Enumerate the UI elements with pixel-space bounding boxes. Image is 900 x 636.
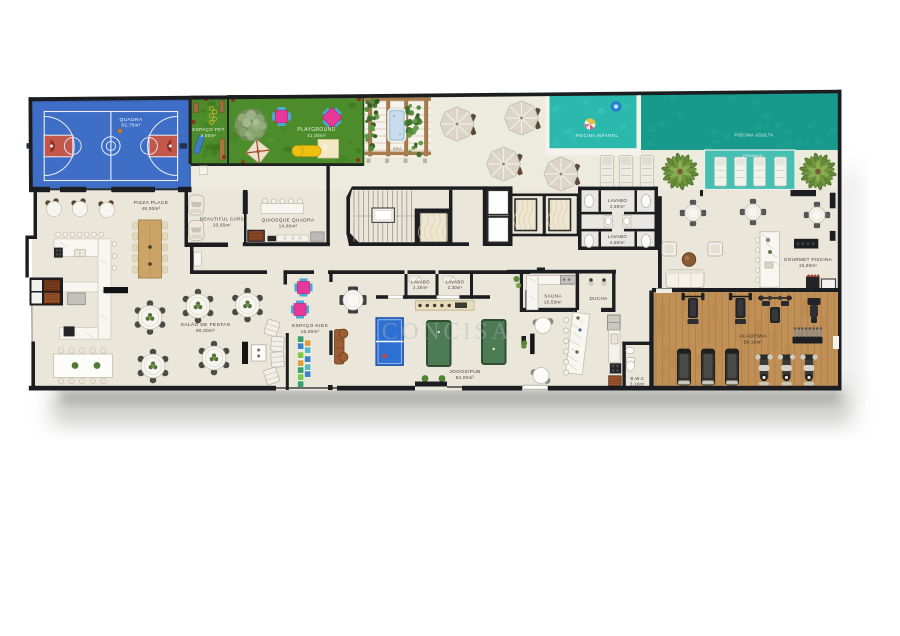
svg-text:GOURMET PISCINA: GOURMET PISCINA	[784, 257, 833, 262]
svg-text:14,00m²: 14,00m²	[279, 223, 298, 228]
svg-text:84,00m²: 84,00m²	[456, 375, 475, 380]
svg-text:3,10m²: 3,10m²	[630, 381, 645, 386]
svg-text:CONCISA: CONCISA	[382, 319, 513, 345]
svg-text:ESPAÇO PET: ESPAÇO PET	[192, 127, 225, 132]
svg-text:16,00m²: 16,00m²	[301, 329, 320, 334]
svg-text:PISCINA INFANTIL: PISCINA INFANTIL	[576, 133, 619, 138]
svg-text:90,00m²: 90,00m²	[196, 328, 215, 333]
svg-text:PISCINA ADULTA: PISCINA ADULTA	[734, 133, 773, 138]
svg-text:2,30m²: 2,30m²	[448, 285, 463, 290]
svg-text:4,50m²: 4,50m²	[610, 204, 625, 209]
svg-text:DUCHA: DUCHA	[589, 296, 608, 301]
svg-text:2,30m²: 2,30m²	[413, 285, 428, 290]
svg-text:SAUNA: SAUNA	[544, 294, 562, 299]
svg-text:SALÃO DE FESTAS: SALÃO DE FESTAS	[181, 321, 231, 328]
svg-text:4,80m²: 4,80m²	[610, 240, 625, 245]
svg-text:LAVABO: LAVABO	[411, 280, 430, 285]
svg-text:LAVABO: LAVABO	[608, 198, 628, 203]
svg-text:B.W.C: B.W.C	[631, 376, 645, 381]
svg-text:LAVABO: LAVABO	[608, 234, 628, 239]
svg-text:SPA: SPA	[393, 147, 403, 152]
svg-text:BEAUTIFUL CARS: BEAUTIFUL CARS	[200, 217, 244, 222]
svg-text:10,55m²: 10,55m²	[544, 299, 562, 304]
svg-text:LAVABO: LAVABO	[446, 280, 465, 285]
svg-text:10,05m²: 10,05m²	[213, 222, 231, 227]
svg-text:31,00m²: 31,00m²	[307, 133, 326, 138]
svg-text:8,50m²: 8,50m²	[201, 133, 217, 138]
svg-text:48,00m²: 48,00m²	[142, 206, 161, 211]
svg-text:58,10m²: 58,10m²	[744, 340, 763, 345]
svg-text:15,00m²: 15,00m²	[799, 263, 817, 268]
svg-text:62,75m²: 62,75m²	[122, 123, 141, 128]
